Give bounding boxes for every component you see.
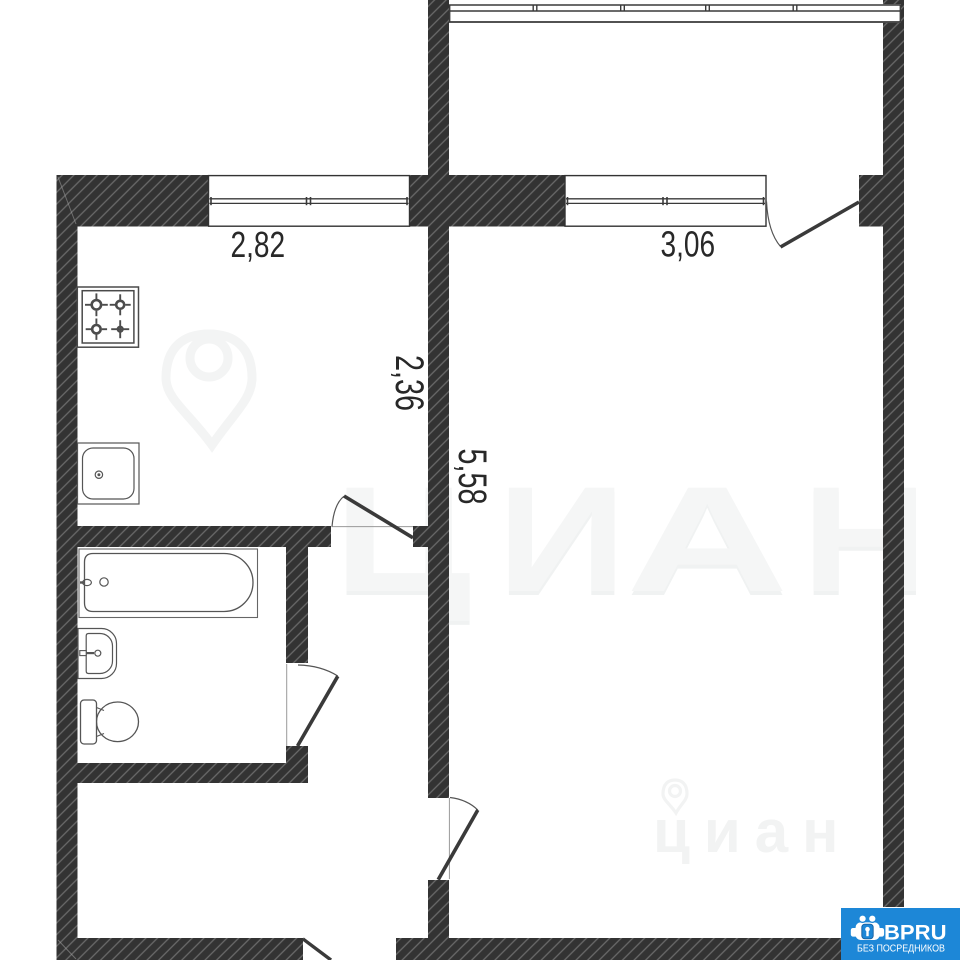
svg-text:И: И	[497, 456, 626, 623]
svg-text:Н: Н	[802, 456, 928, 623]
svg-text:BPRU: BPRU	[884, 921, 947, 945]
svg-text:2,82: 2,82	[231, 225, 286, 265]
svg-text:2,36: 2,36	[387, 355, 432, 411]
svg-text:3,06: 3,06	[661, 224, 716, 264]
svg-text:циан: циан	[653, 798, 852, 865]
svg-text:БЕЗ ПОСРЕДНИКОВ: БЕЗ ПОСРЕДНИКОВ	[857, 943, 945, 954]
svg-text:А: А	[626, 455, 788, 623]
svg-text:5,58: 5,58	[450, 449, 495, 505]
